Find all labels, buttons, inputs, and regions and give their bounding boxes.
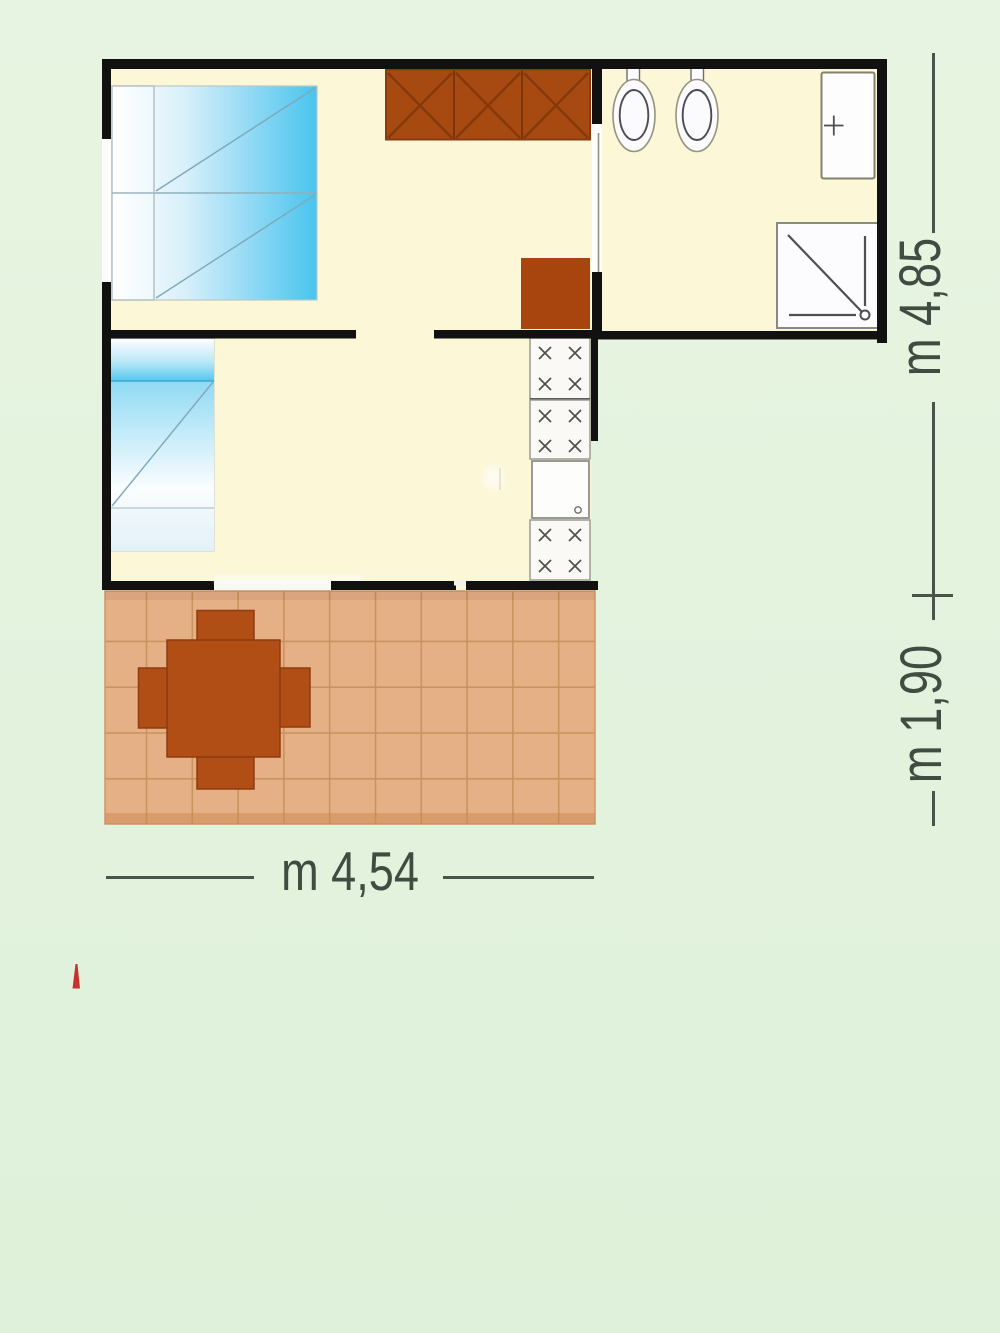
- svg-text:m 1,90: m 1,90: [890, 645, 955, 783]
- svg-text:m 4,85: m 4,85: [889, 238, 954, 376]
- svg-text:m 4,54: m 4,54: [281, 840, 419, 902]
